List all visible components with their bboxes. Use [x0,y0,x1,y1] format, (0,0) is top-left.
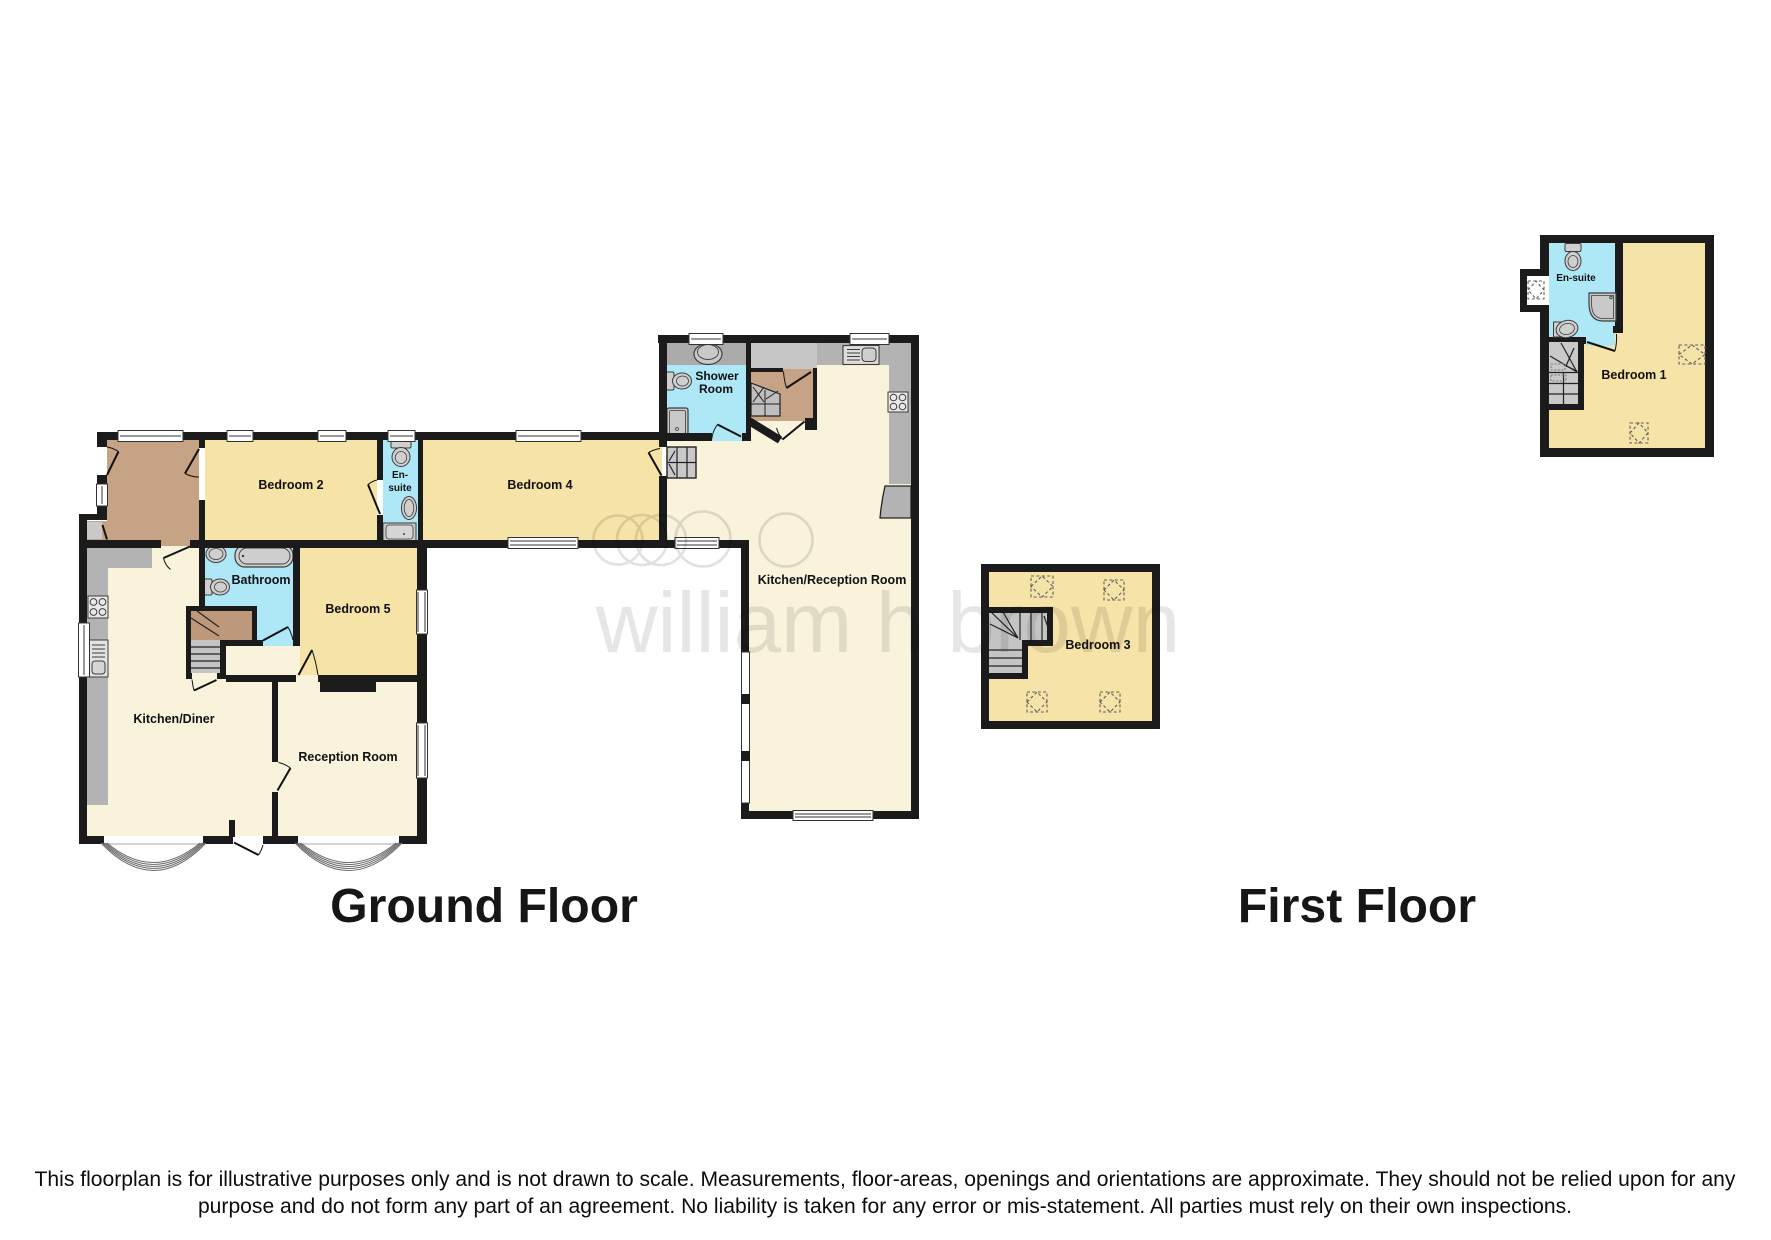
svg-text:Ground Floor: Ground Floor [330,879,638,933]
svg-text:Bedroom 5: Bedroom 5 [325,602,390,616]
svg-text:Kitchen/Diner: Kitchen/Diner [133,712,214,726]
svg-text:En-suite: En-suite [1556,273,1596,284]
svg-text:This floorplan is for illustra: This floorplan is for illustrative purpo… [35,1168,1736,1191]
svg-text:Reception Room: Reception Room [298,750,397,764]
svg-text:Shower: Shower [695,369,739,383]
svg-text:Room: Room [699,382,733,396]
svg-text:Bedroom 1: Bedroom 1 [1601,368,1666,382]
svg-text:suite: suite [388,483,412,494]
svg-text:Bedroom 2: Bedroom 2 [258,478,323,492]
svg-text:Bathroom: Bathroom [231,573,290,587]
svg-text:purpose and do not form any pa: purpose and do not form any part of an a… [198,1195,1572,1218]
svg-text:First Floor: First Floor [1238,879,1477,933]
svg-text:william h brown: william h brown [595,576,1180,671]
svg-text:En-: En- [392,470,408,481]
svg-text:Bedroom 4: Bedroom 4 [507,478,572,492]
